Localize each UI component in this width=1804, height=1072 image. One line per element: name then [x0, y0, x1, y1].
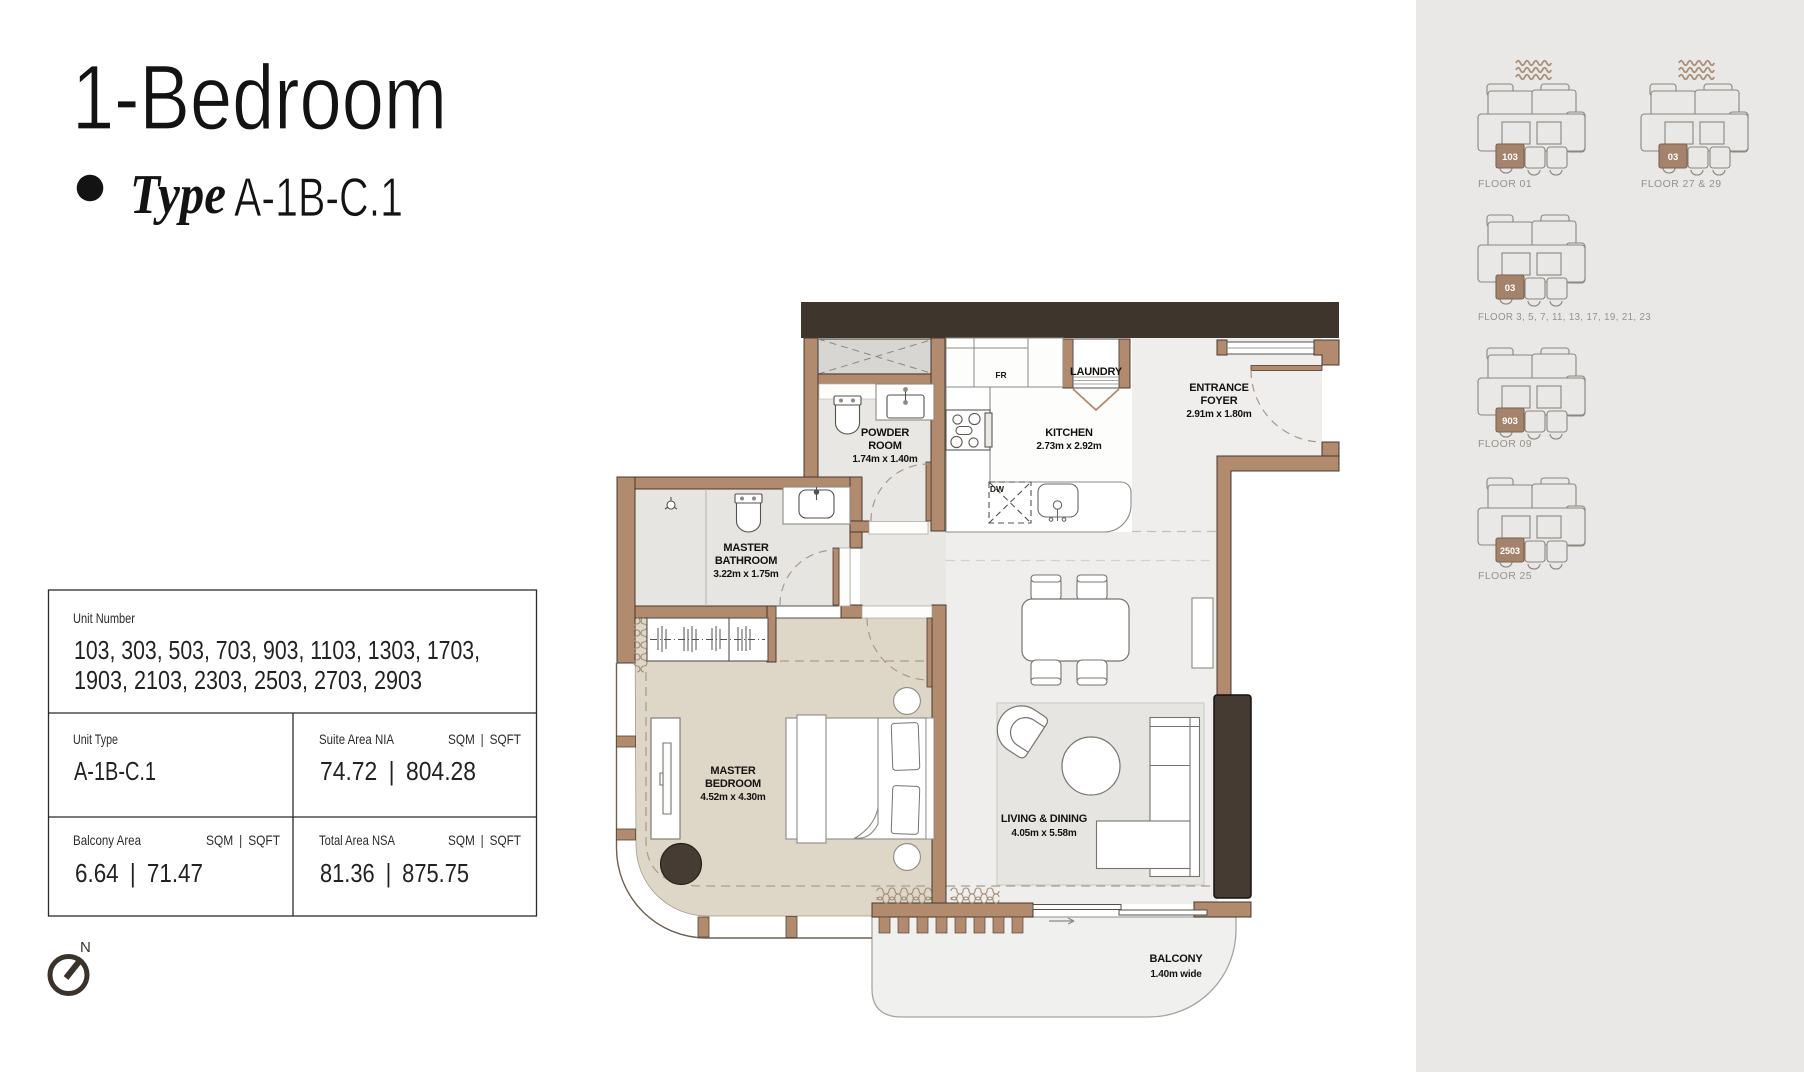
svg-text:A-1B-C.1: A-1B-C.1	[234, 166, 403, 228]
svg-text:BATHROOM: BATHROOM	[715, 555, 777, 567]
svg-text:BALCONY: BALCONY	[1150, 953, 1204, 965]
svg-text:POWDER: POWDER	[861, 427, 910, 439]
svg-text:FLOOR 3, 5, 7, 11, 13, 17, 19,: FLOOR 3, 5, 7, 11, 13, 17, 19, 21, 23	[1478, 311, 1651, 323]
svg-text:ROOM: ROOM	[868, 440, 901, 452]
svg-text:903: 903	[1502, 416, 1518, 427]
svg-text:MASTER: MASTER	[710, 765, 756, 777]
svg-text:Suite Area NIA: Suite Area NIA	[319, 731, 395, 747]
svg-text:03: 03	[1668, 152, 1679, 163]
svg-text:6.64 | 71.47: 6.64 | 71.47	[75, 858, 203, 888]
svg-text:A-1B-C.1: A-1B-C.1	[74, 756, 156, 786]
svg-text:SQM | SQFT: SQM | SQFT	[206, 832, 280, 848]
svg-text:Type: Type	[130, 164, 226, 226]
svg-text:FLOOR 01: FLOOR 01	[1478, 178, 1532, 190]
svg-text:Unit Number: Unit Number	[73, 610, 135, 626]
svg-text:FR: FR	[995, 370, 1006, 380]
svg-text:2503: 2503	[1500, 546, 1520, 556]
svg-text:FOYER: FOYER	[1201, 395, 1238, 407]
svg-text:74.72 | 804.28: 74.72 | 804.28	[320, 756, 476, 786]
svg-text:MASTER: MASTER	[723, 542, 769, 554]
svg-text:1.74m x 1.40m: 1.74m x 1.40m	[852, 454, 918, 465]
svg-text:1-Bedroom: 1-Bedroom	[72, 47, 447, 149]
svg-text:4.05m x 5.58m: 4.05m x 5.58m	[1011, 828, 1077, 839]
svg-text:N: N	[80, 939, 91, 956]
svg-text:1903, 2103, 2303, 2503, 2703,: 1903, 2103, 2303, 2503, 2703, 2903	[74, 665, 422, 695]
svg-text:ENTRANCE: ENTRANCE	[1189, 382, 1249, 394]
svg-text:103, 303, 503, 703, 903, 1103,: 103, 303, 503, 703, 903, 1103, 1303, 170…	[74, 635, 480, 665]
svg-text:FLOOR 25: FLOOR 25	[1478, 570, 1532, 582]
svg-text:FLOOR 27 & 29: FLOOR 27 & 29	[1641, 178, 1721, 190]
svg-text:2.91m x 1.80m: 2.91m x 1.80m	[1186, 409, 1252, 420]
svg-text:DW: DW	[990, 484, 1005, 494]
svg-text:KITCHEN: KITCHEN	[1045, 427, 1093, 439]
svg-text:FLOOR 09: FLOOR 09	[1478, 438, 1532, 450]
svg-text:Unit Type: Unit Type	[73, 731, 118, 747]
svg-text:03: 03	[1505, 283, 1516, 294]
svg-text:4.52m x 4.30m: 4.52m x 4.30m	[700, 792, 766, 803]
svg-text:2.73m x 2.92m: 2.73m x 2.92m	[1036, 441, 1102, 452]
svg-text:1.40m wide: 1.40m wide	[1150, 969, 1202, 980]
svg-text:103: 103	[1502, 152, 1518, 163]
svg-text:LAUNDRY: LAUNDRY	[1070, 366, 1123, 378]
svg-text:SQM | SQFT: SQM | SQFT	[448, 832, 521, 848]
svg-text:SQM | SQFT: SQM | SQFT	[448, 731, 521, 747]
svg-text:Balcony Area: Balcony Area	[73, 832, 141, 848]
svg-text:81.36 | 875.75: 81.36 | 875.75	[320, 858, 469, 888]
svg-text:Total Area NSA: Total Area NSA	[319, 832, 396, 848]
svg-text:BEDROOM: BEDROOM	[705, 778, 761, 790]
svg-text:3.22m x 1.75m: 3.22m x 1.75m	[713, 569, 779, 580]
svg-text:LIVING & DINING: LIVING & DINING	[1001, 813, 1087, 825]
